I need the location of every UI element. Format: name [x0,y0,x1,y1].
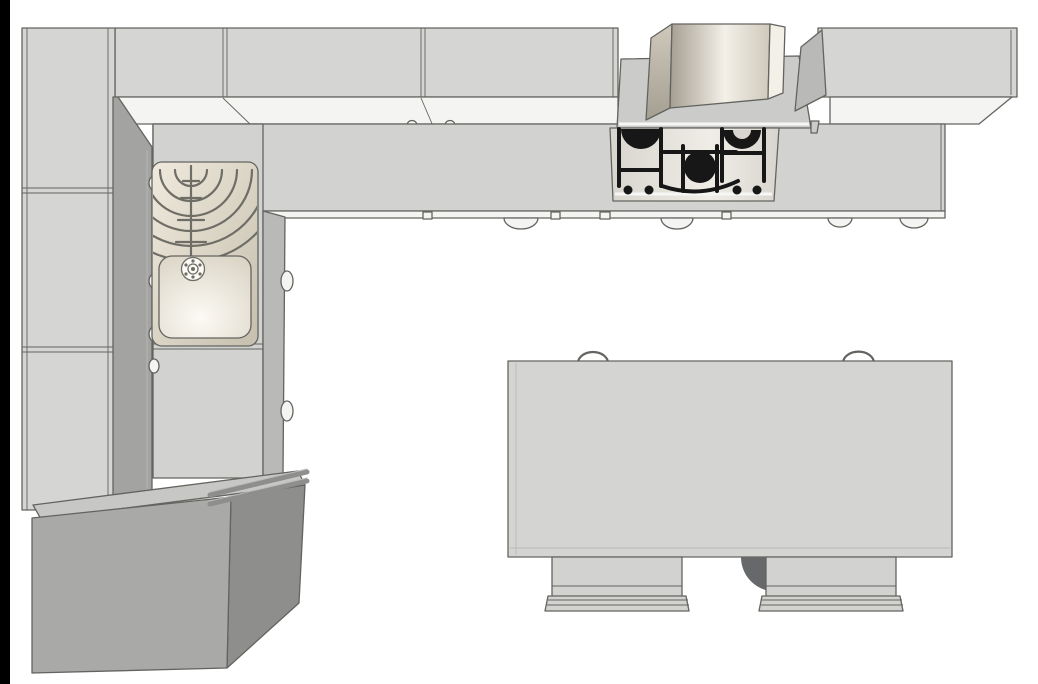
control-knob [624,186,633,195]
base-cabinet-unit [32,469,307,673]
chair-base-molding [545,596,689,611]
hood-canopy-hook [811,121,819,133]
left-edge-strip [0,0,10,684]
drawer-handle [504,218,538,229]
countertop-surface [153,124,945,211]
cabinet-knob [281,401,293,421]
hood-chimney-left-face [646,24,672,120]
control-knob [645,186,654,195]
wall-cabinet-top-band-right [818,28,1017,97]
tall-cabinet-side-panel [113,97,152,509]
wall-cabinet-front-right [830,97,1012,124]
island-table-top [508,361,952,557]
drawer-tab [423,212,432,219]
control-knob [733,186,742,195]
control-knob [753,186,762,195]
wall-cabinet-run [115,28,1017,128]
chair-base-molding [759,596,903,611]
drawer-handle [900,218,928,228]
tall-cabinet-tops [22,28,115,510]
chair-left [545,557,689,611]
kitchen-plan [0,0,1017,684]
chimney-range-hood [617,24,826,133]
chair-right [759,557,903,611]
hood-chimney-right-face [768,24,785,99]
drawer-tab [551,212,560,219]
hood-side-wing [795,30,826,111]
drawer-handle [661,218,693,229]
hood-chimney-front-face [670,24,770,108]
counter-front-band [263,211,285,478]
wall-cabinet-top-band-left [115,28,618,97]
drawer-tab [722,212,731,219]
burner-center [684,151,716,183]
base-cabinet-side [227,485,305,668]
drawer-tab [600,212,610,219]
drawer-handle [828,218,852,227]
cabinet-knob [281,271,293,291]
gas-cooktop [610,128,779,201]
sink-drain [182,258,205,281]
chair-seat-back [552,557,682,598]
wall-cabinet-front-left [118,97,618,124]
base-cabinet-front [32,497,231,673]
chair-seat-back [766,557,896,598]
kitchen-render: Top-down 3D render of an L-shaped kitche… [0,0,1038,684]
island-table [508,352,952,611]
cabinet-knob [149,359,159,373]
